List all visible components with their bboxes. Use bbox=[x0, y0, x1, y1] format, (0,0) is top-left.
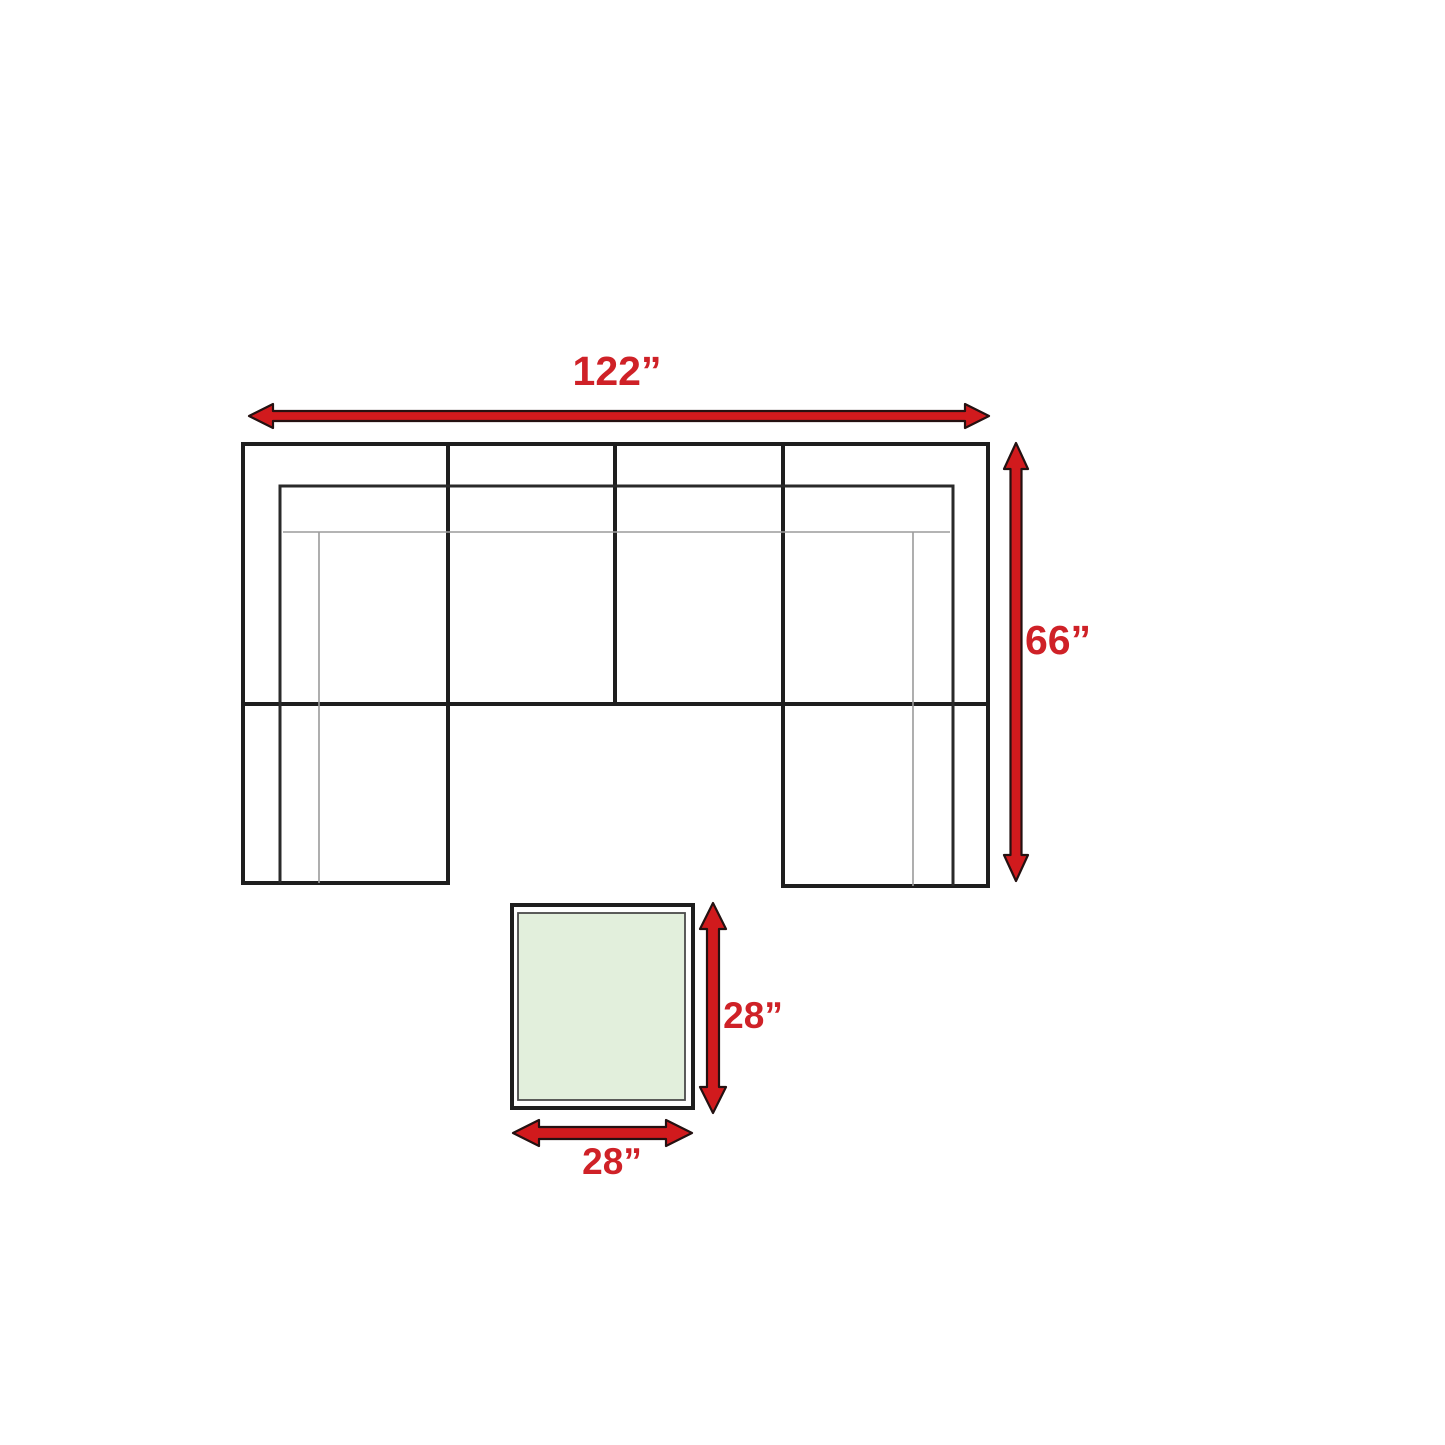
sofa-right-chaise-outline bbox=[783, 704, 988, 886]
ottoman-top-view bbox=[512, 905, 693, 1108]
sofa-width-arrow-icon bbox=[249, 404, 989, 428]
dimension-diagram-page: 122” 66” 28” 28” bbox=[0, 0, 1445, 1445]
ottoman-depth-label: 28” bbox=[723, 995, 783, 1036]
sofa-width-label: 122” bbox=[573, 348, 662, 394]
ottoman-width-label: 28” bbox=[582, 1141, 642, 1182]
sofa-depth-label: 66” bbox=[1025, 617, 1091, 663]
ottoman-depth-arrow-icon bbox=[700, 903, 726, 1113]
sofa-left-chaise-outline bbox=[243, 704, 448, 883]
sofa-top-view bbox=[243, 444, 988, 886]
ottoman-cushion-surface bbox=[518, 913, 685, 1100]
sectional-sofa-dimension-diagram: 122” 66” 28” 28” bbox=[0, 0, 1445, 1445]
